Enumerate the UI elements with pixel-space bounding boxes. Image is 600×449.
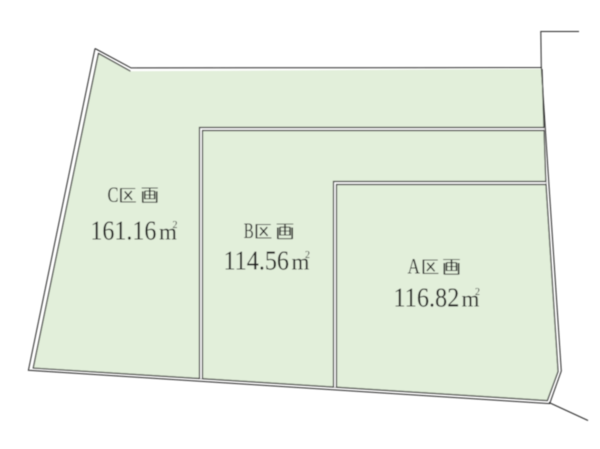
svg-text:161.16: 161.16 <box>90 216 156 246</box>
svg-text:114.56: 114.56 <box>224 246 290 276</box>
svg-text:2: 2 <box>305 250 310 261</box>
svg-text:C: C <box>108 182 119 207</box>
svg-text:2: 2 <box>475 287 480 298</box>
svg-text:A: A <box>408 254 421 279</box>
svg-text:2: 2 <box>173 220 178 231</box>
svg-text:116.82: 116.82 <box>393 283 459 313</box>
svg-text:B: B <box>244 218 254 243</box>
